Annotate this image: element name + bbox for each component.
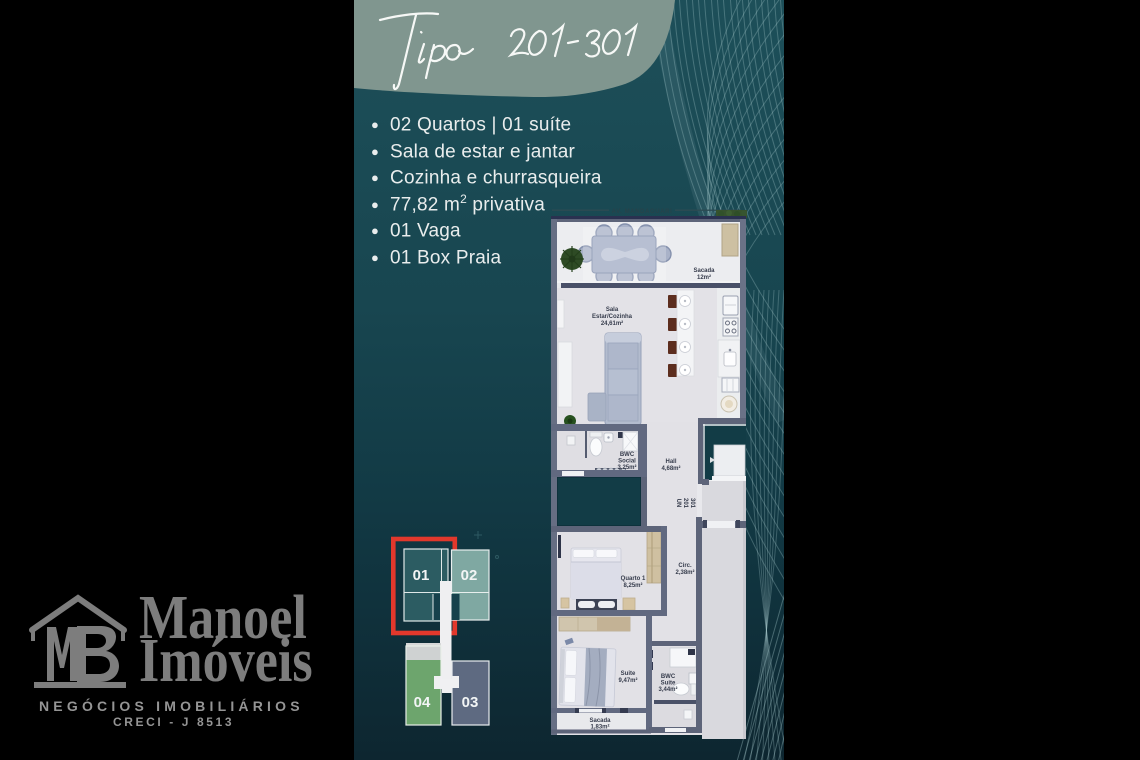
svg-text:Social: Social	[618, 459, 636, 465]
svg-text:201: 201	[682, 498, 688, 509]
svg-text:Sala: Sala	[606, 307, 619, 313]
svg-text:8,25m²: 8,25m²	[623, 582, 642, 589]
svg-text:Suite: Suite	[661, 681, 676, 687]
svg-text:04: 04	[414, 694, 431, 711]
svg-text:24,61m²: 24,61m²	[601, 320, 623, 327]
svg-text:3,44m²: 3,44m²	[658, 686, 677, 693]
svg-text:01: 01	[413, 567, 430, 584]
svg-text:Estar/Cozinha: Estar/Cozinha	[592, 314, 633, 320]
svg-text:03: 03	[462, 694, 479, 711]
svg-text:301: 301	[689, 498, 695, 509]
svg-text:4,68m²: 4,68m²	[661, 465, 680, 472]
svg-text:1,83m²: 1,83m²	[590, 724, 609, 731]
svg-text:UN: UN	[675, 499, 681, 508]
svg-text:BWC: BWC	[620, 452, 635, 458]
svg-text:Sacada: Sacada	[589, 718, 611, 724]
svg-text:3,25m²: 3,25m²	[617, 464, 636, 471]
svg-text:12m²: 12m²	[697, 274, 711, 281]
svg-text:Quarto 1: Quarto 1	[621, 576, 646, 582]
svg-text:2,38m²: 2,38m²	[675, 569, 694, 576]
svg-text:AV. MANDAGUARI: AV. MANDAGUARI	[612, 209, 673, 215]
svg-text:Hall: Hall	[665, 459, 676, 465]
svg-text:9,47m²: 9,47m²	[618, 677, 637, 684]
svg-text:Sacada: Sacada	[693, 268, 715, 274]
svg-text:BWC: BWC	[661, 674, 676, 680]
svg-text:Suite: Suite	[621, 671, 636, 677]
svg-text:02: 02	[461, 567, 478, 584]
svg-text:Circ.: Circ.	[678, 563, 692, 569]
